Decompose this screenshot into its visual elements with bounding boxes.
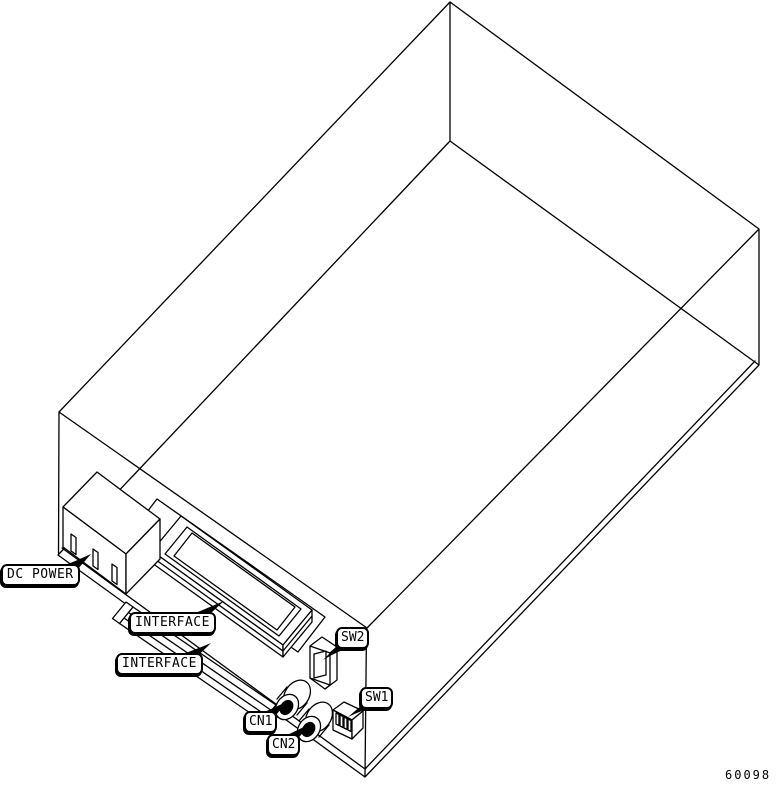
callout-cn1: CN1	[244, 711, 277, 733]
callout-sw2: SW2	[336, 627, 369, 649]
callout-dc-power: DC POWER	[1, 564, 80, 586]
callout-sw1: SW1	[360, 687, 393, 709]
sw2-switch	[310, 637, 337, 689]
callout-cn2: CN2	[267, 734, 300, 756]
sw1-dip-switch	[333, 702, 363, 739]
device-wireframe-drawing	[0, 0, 776, 792]
figure-connector-location-diagram: DC POWER INTERFACE INTERFACE SW2 SW1 CN1…	[0, 0, 776, 792]
figure-number: 60098	[725, 768, 771, 782]
callout-interface-upper: INTERFACE	[129, 612, 216, 634]
callout-interface-lower: INTERFACE	[116, 653, 203, 675]
